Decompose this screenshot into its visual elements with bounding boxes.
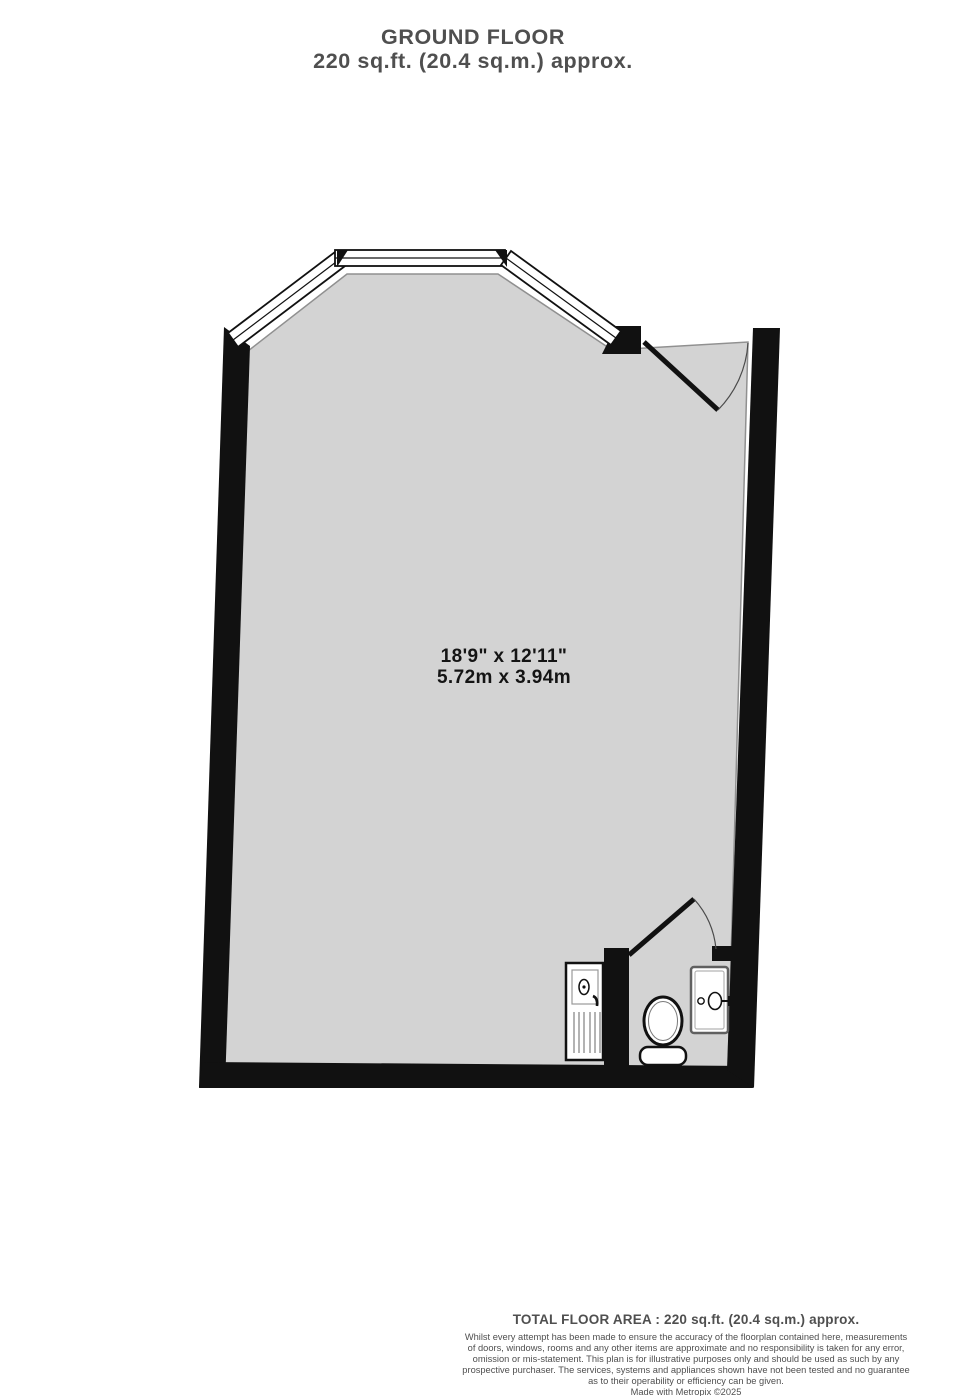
washbasin-basin xyxy=(709,993,722,1010)
metropix-credit: Made with Metropix ©2025 xyxy=(426,1387,946,1396)
disclaimer-line: prospective purchaser. The services, sys… xyxy=(426,1365,946,1376)
wall-wc-stub xyxy=(712,946,733,961)
wall-wc-partition xyxy=(604,948,629,1070)
sink-plug xyxy=(582,985,585,988)
disclaimer-line: omission or mis-statement. This plan is … xyxy=(426,1354,946,1365)
disclaimer-line: Whilst every attempt has been made to en… xyxy=(426,1332,946,1343)
toilet-bowl xyxy=(644,997,682,1045)
room-dimensions-imperial: 18'9" x 12'11" xyxy=(304,646,704,667)
disclaimer-line: of doors, windows, rooms and any other i… xyxy=(426,1343,946,1354)
washbasin-plug xyxy=(698,998,704,1004)
floorplan-page: GROUND FLOOR 220 sq.ft. (20.4 sq.m.) app… xyxy=(0,0,980,1396)
disclaimer-block: Whilst every attempt has been made to en… xyxy=(426,1332,946,1396)
toilet-base xyxy=(640,1047,686,1065)
washbasin-icon xyxy=(691,967,729,1033)
disclaimer-line: as to their operability or efficiency ca… xyxy=(426,1376,946,1387)
floorplan-drawing xyxy=(0,0,980,1396)
room-dimensions-metric: 5.72m x 3.94m xyxy=(304,667,704,688)
room-dimension-label: 18'9" x 12'11" 5.72m x 3.94m xyxy=(304,646,704,688)
total-floor-area: TOTAL FLOOR AREA : 220 sq.ft. (20.4 sq.m… xyxy=(426,1312,946,1327)
sink-drainer-icon xyxy=(566,963,603,1060)
toilet-icon xyxy=(640,997,686,1065)
